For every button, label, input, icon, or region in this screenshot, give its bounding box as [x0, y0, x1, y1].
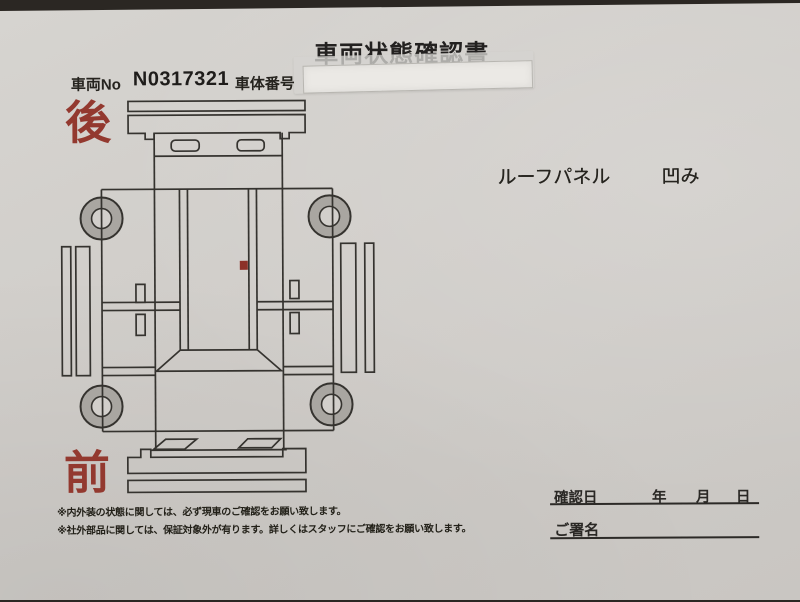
body-no-label: 車体番号 — [235, 73, 295, 94]
wheel-icon — [79, 195, 352, 427]
signature-label: ご署名 — [554, 519, 599, 540]
day-label: 日 — [736, 485, 751, 506]
document: 車両状態確認書 車両No N0317321 車体番号 後 前 — [0, 0, 800, 602]
side-doors — [101, 188, 333, 431]
note-line: ※社外部品に関しては、保証対象外が有ります。詳しくはスタッフにご確認をお願い致し… — [57, 521, 471, 541]
front-bumper — [128, 448, 306, 492]
damage-part-text: ルーフパネル — [497, 162, 610, 190]
disclaimer-notes: ※内外装の状態に関しては、必ず現車のご確認をお願い致します。 ※社外部品に関して… — [57, 503, 471, 541]
redaction-sticker — [303, 60, 534, 94]
damage-condition-text: 凹み — [661, 161, 699, 188]
car-body-outline — [149, 133, 287, 451]
windshield — [156, 350, 281, 372]
confirmation-date-row: 確認日 年 月 日 — [550, 485, 759, 505]
note-line: ※内外装の状態に関しては、必ず現車のご確認をお願い致します。 — [57, 503, 471, 523]
month-label: 月 — [696, 485, 711, 506]
signature-row: ご署名 — [550, 516, 759, 539]
dent-marker — [240, 261, 248, 270]
car-top-view-diagram — [39, 95, 391, 507]
vehicle-no-label: 車両No — [71, 73, 121, 94]
headlights — [154, 439, 281, 450]
year-label: 年 — [652, 486, 667, 507]
confirm-date-label: 確認日 — [554, 486, 598, 507]
vehicle-no-value: N0317321 — [133, 68, 229, 92]
